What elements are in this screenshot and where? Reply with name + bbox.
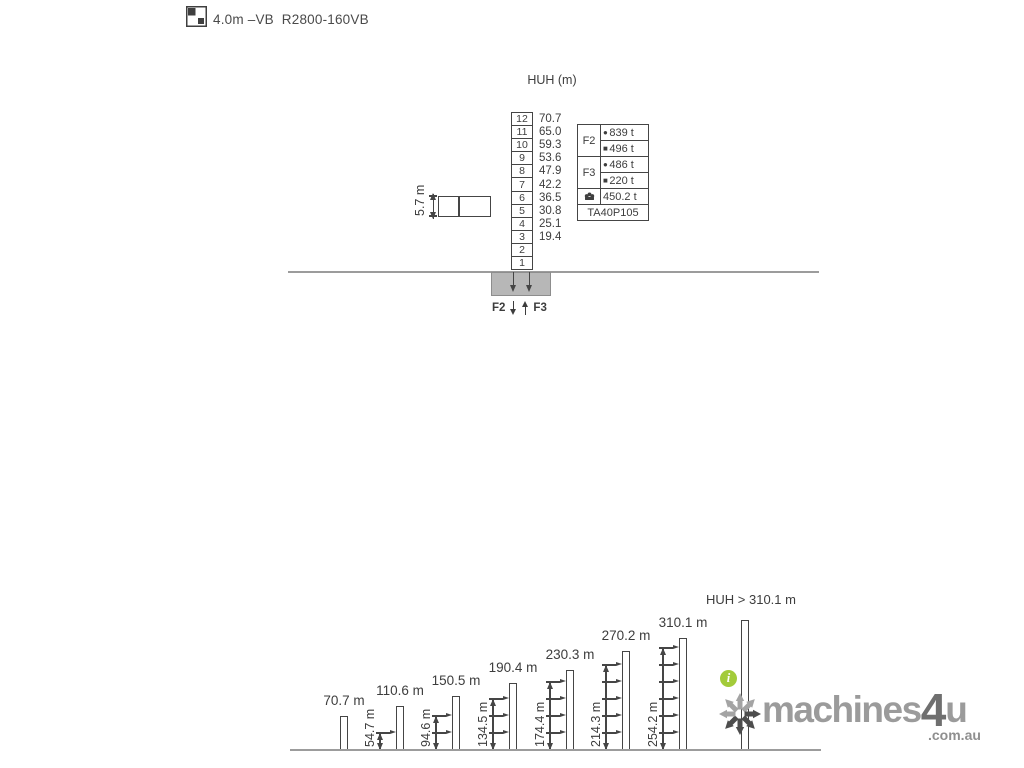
corner-force-table: F2 ● 839 t ■ 496 t F3 ● 486 t ■ 220 t 45…: [577, 124, 649, 221]
tie-arrow: [602, 732, 616, 734]
tower-height-label: 150.5 m: [432, 673, 481, 688]
tie-height-label: 174.4 m: [533, 702, 547, 747]
tie-arrow-head-icon: [446, 730, 452, 734]
section-number: 8: [511, 164, 533, 178]
tie-arrow: [602, 715, 616, 717]
foundation-type-label: TA40P105: [578, 205, 649, 221]
tie-arrow: [489, 732, 503, 734]
tie-arrow-head-icon: [616, 713, 622, 717]
section-huh-value: 59.3: [539, 139, 561, 151]
tower-bar: [566, 670, 574, 751]
section-huh-value: 47.9: [539, 165, 561, 177]
tower-section-row: 1270.7: [511, 112, 561, 126]
tie-arrow-head-icon: [673, 696, 679, 700]
force-f2-label: F2: [492, 302, 505, 314]
dimension-arrow-up-icon: [490, 699, 496, 706]
tie-height-label: 134.5 m: [476, 702, 490, 747]
anchor-arrow-down-icon: [526, 285, 532, 292]
square-marker-icon: ■: [603, 177, 608, 185]
ground-line-bottom: [290, 749, 821, 751]
tie-height-label: 94.6 m: [419, 709, 433, 747]
tie-arrow-head-icon: [560, 713, 566, 717]
square-marker-icon: ■: [603, 145, 608, 153]
tie-arrow: [659, 681, 673, 683]
dimension-arrow-down-icon: [430, 212, 436, 219]
dimension-arrow-up-icon: [547, 682, 553, 689]
tie-arrow: [432, 732, 446, 734]
section-length-label: 5.7 m: [413, 185, 427, 216]
table-value-text: 220 t: [609, 175, 633, 187]
section-huh-value: 30.8: [539, 205, 561, 217]
dimension-arrow-up-icon: [433, 716, 439, 723]
section-number: 4: [511, 217, 533, 231]
tower-section-row: 425.1: [511, 217, 561, 231]
section-number: 2: [511, 243, 533, 257]
tie-arrow: [376, 732, 390, 734]
tower-height-label: 230.3 m: [546, 647, 595, 662]
tie-arrow: [602, 698, 616, 700]
tie-arrow: [602, 681, 616, 683]
diagram-header: 4.0m –VB R2800-160VB: [186, 6, 369, 32]
tower-section-row: 953.6: [511, 151, 561, 165]
section-number: 11: [511, 125, 533, 139]
asterisk-logo-icon: [716, 725, 764, 742]
tower-section-side-view: [438, 196, 491, 217]
tie-arrow: [659, 664, 673, 666]
tie-arrow-head-icon: [673, 662, 679, 666]
tie-arrow-head-icon: [503, 713, 509, 717]
dimension-arrow-up-icon: [377, 733, 383, 740]
tie-arrow: [546, 732, 560, 734]
anchor-arrow-down-icon: [510, 285, 516, 292]
table-value: ■ 496 t: [601, 141, 649, 157]
tower-section-row: 319.4: [511, 230, 561, 244]
tie-height-label: 54.7 m: [363, 709, 377, 747]
section-number: 10: [511, 138, 533, 152]
tie-arrow: [659, 647, 673, 649]
section-huh-value: 36.5: [539, 192, 561, 204]
table-value: ● 839 t: [601, 125, 649, 141]
tower-cross-section-icon: [186, 6, 207, 32]
tower-bar: [452, 696, 460, 751]
tower-bar: [340, 716, 348, 751]
circle-marker-icon: ●: [603, 129, 608, 137]
table-value: ■ 220 t: [601, 173, 649, 189]
dimension-arrow-up-icon: [430, 193, 436, 200]
tower-section-row: 742.2: [511, 177, 561, 191]
section-number: 12: [511, 112, 533, 126]
table-label-f2: F2: [578, 125, 601, 157]
tie-arrow-head-icon: [673, 713, 679, 717]
tie-arrow-head-icon: [446, 713, 452, 717]
tie-arrow-head-icon: [673, 730, 679, 734]
section-huh-value: 19.4: [539, 231, 561, 243]
info-icon-glyph: i: [727, 671, 730, 686]
tower-section-row: 847.9: [511, 164, 561, 178]
tower-height-label: 270.2 m: [602, 628, 651, 643]
tie-arrow-head-icon: [560, 679, 566, 683]
tie-arrow-head-icon: [503, 696, 509, 700]
tie-arrow: [432, 715, 446, 717]
foundation-force-labels: F2 F3: [492, 301, 547, 315]
ballast-icon: [578, 189, 601, 205]
tie-arrow-head-icon: [673, 679, 679, 683]
tie-dimension-line: [605, 665, 607, 750]
tie-arrow: [546, 715, 560, 717]
section-number: 5: [511, 204, 533, 218]
tower-bar: [679, 638, 687, 751]
section-number: 9: [511, 151, 533, 165]
tie-arrow-head-icon: [390, 730, 396, 734]
machines4u-watermark: machines 4 u .com.au: [716, 690, 764, 743]
ballast-value: 450.2 t: [601, 189, 649, 205]
tower-height-label: 190.4 m: [489, 660, 538, 675]
climbing-diagram-title: HUH > 310.1 m: [685, 592, 817, 607]
tower-height-label: 110.6 m: [376, 683, 424, 698]
huh-axis-label: HUH (m): [517, 73, 587, 87]
tie-arrow: [489, 715, 503, 717]
section-number: 3: [511, 230, 533, 244]
tie-height-label: 214.3 m: [589, 702, 603, 747]
tie-arrow-head-icon: [616, 679, 622, 683]
foundation-block: [491, 272, 551, 296]
section-huh-value: 25.1: [539, 218, 561, 230]
tie-height-label: 254.2 m: [646, 702, 660, 747]
tie-arrow: [659, 732, 673, 734]
section-huh-value: 53.6: [539, 152, 561, 164]
table-value-text: 839 t: [609, 127, 633, 139]
tie-arrow: [659, 715, 673, 717]
logo-brand-text: machines: [762, 691, 921, 728]
tower-section-row: 2: [511, 243, 561, 257]
tie-arrow-head-icon: [616, 662, 622, 666]
section-huh-value: 70.7: [539, 113, 561, 125]
tie-arrow-head-icon: [616, 730, 622, 734]
tower-section-row: 530.8: [511, 204, 561, 218]
circle-marker-icon: ●: [603, 161, 608, 169]
tower-section-divider-line: [458, 196, 460, 217]
tie-arrow: [489, 698, 503, 700]
section-huh-value: 42.2: [539, 179, 561, 191]
logo-domain-text: .com.au: [928, 727, 981, 743]
page-title: 4.0m –VB R2800-160VB: [213, 12, 369, 27]
force-down-arrow-icon: [509, 301, 517, 315]
table-value-text: 486 t: [609, 159, 633, 171]
table-label-f3: F3: [578, 157, 601, 189]
dimension-arrow-up-icon: [603, 665, 609, 672]
section-number: 6: [511, 191, 533, 205]
tie-arrow: [602, 664, 616, 666]
force-up-arrow-icon: [521, 301, 529, 315]
section-huh-value: 65.0: [539, 126, 561, 138]
ground-line-top: [288, 271, 819, 273]
force-f3-label: F3: [533, 302, 546, 314]
crane-spec-diagram-page: 4.0m –VB R2800-160VB HUH (m) 1270.71165.…: [0, 0, 1024, 768]
tie-arrow: [546, 681, 560, 683]
tie-arrow: [546, 698, 560, 700]
section-number: 7: [511, 177, 533, 191]
logo-suffix-text: u: [945, 691, 967, 728]
tie-arrow-head-icon: [503, 730, 509, 734]
tie-arrow-head-icon: [560, 730, 566, 734]
table-value-text: 496 t: [609, 143, 633, 155]
tie-arrow-head-icon: [616, 696, 622, 700]
tie-arrow-head-icon: [673, 645, 679, 649]
table-value: ● 486 t: [601, 157, 649, 173]
info-icon: i: [720, 670, 737, 687]
tower-bar: [509, 683, 517, 751]
tower-section-row: 1059.3: [511, 138, 561, 152]
tower-height-label: 310.1 m: [659, 615, 708, 630]
tower-section-row: 636.5: [511, 191, 561, 205]
tower-section-row: 1165.0: [511, 125, 561, 139]
dimension-arrow-up-icon: [660, 648, 666, 655]
tie-arrow-head-icon: [560, 696, 566, 700]
tower-bar: [622, 651, 630, 751]
tower-bar: [396, 706, 404, 751]
tower-height-label: 70.7 m: [323, 693, 364, 708]
tower-section-row: 1: [511, 256, 561, 270]
tower-sections-column: 1270.71165.01059.3953.6847.9742.2636.553…: [511, 112, 561, 270]
section-number: 1: [511, 256, 533, 270]
tie-arrow: [659, 698, 673, 700]
